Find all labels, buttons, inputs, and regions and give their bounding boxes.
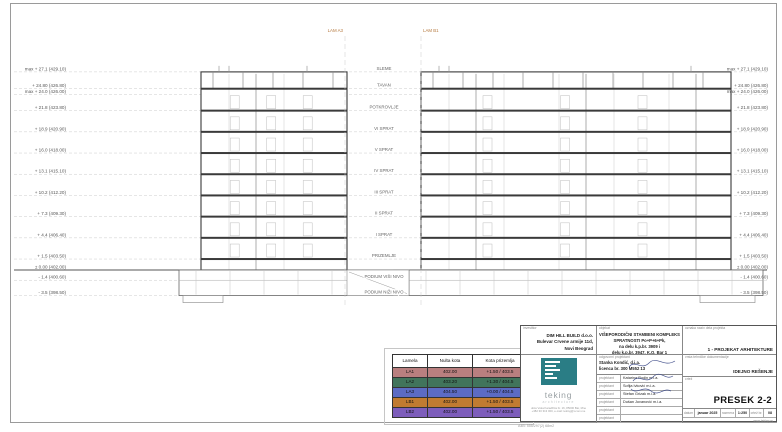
legend-row: LB1402.00+1.50 / 403.5 [393,398,528,408]
level-label-left: + 7.3 (409.30) [37,211,66,216]
project-line: VIŠEPORODIČNI STAMBENI KOMPLEKS [597,332,682,338]
floor-slab [421,216,731,218]
legend-cell-nulta: 402.00 [428,408,473,418]
designer-label: projektant [597,375,621,382]
legend-cell-lamela: LB1 [393,398,428,408]
building-block-left [201,66,347,270]
level-label-left: - 3.5 (398.50) [38,290,66,295]
level-label-left: + 13.1 (415.10) [35,169,67,174]
sheet-number-label: crtež br. [750,409,764,417]
designer-label: projektant [597,407,621,414]
floor-name-label: IV SPRAT [374,168,394,173]
level-label-left: ± 0.00 (402.00) [35,265,67,270]
investor-city: Novi Beograd [537,346,593,352]
floor-name-label: PODIUM NIŽI NIVO [364,290,404,295]
floor-name-label: VI SPRAT [374,126,394,131]
website: www.teking.rs [753,419,773,423]
level-label-right: - 3.5 (398.50) [740,290,768,295]
drawing-info-cell: vrsta tehničke dokumentacije IDEJNO REŠE… [683,355,776,423]
foundation-detail [700,296,755,303]
level-label-left: + 4.4 (406.40) [37,232,66,237]
designer-name [621,415,682,422]
drawing-title: PRESEK 2-2 [714,395,772,406]
doc-type-label: vrsta tehničke dokumentacije [685,356,729,359]
designer-name: Dušan Jovanović m.i.a. [621,399,682,406]
investor-label: investitor [523,327,537,330]
level-label-right: + 21.8 (423.80) [737,105,769,110]
floor-name-label: PRIZEMLJE [372,253,396,258]
legend-row: LA2403.20+1.30 / 404.5 [393,378,528,388]
level-label-left: + 10.2 (412.20) [35,190,67,195]
designer-label: projektant [597,399,621,406]
doc-type-value: IDEJNO REŠENJE [733,369,773,374]
floor-name-label: PODIUM VIŠI NIVO [364,274,404,279]
floor-slab [201,152,347,154]
building-block-right [421,66,731,270]
floor-slab [421,237,731,239]
designer-row: projektant Dušan Jovanović m.i.a. [597,399,682,407]
floor-slab [421,258,731,260]
legend-cell-nulta: 404.50 [428,388,473,398]
studio-contact: +382 30 313 000, e-mail: teking@t-com.me [521,410,596,414]
drawing-title-cell: crtež PRESEK 2-2 [683,377,776,409]
project-part-value: 1 - PROJEKAT ARHITEKTURE [708,347,773,352]
lamela-marker-label: LAM A3 [328,28,344,33]
legend-cell-lamela: LA2 [393,378,428,388]
level-label-left: max + 24.0 (426.00) [25,89,67,94]
floor-slab [201,258,347,260]
level-label-right: + 13.1 (415.10) [737,169,769,174]
brand-name: teking [521,391,596,400]
date-value: januar 2025 [695,409,721,417]
brand-subtitle: architecture [521,400,596,404]
date-scale-row: datum januar 2025 razmera 1:250 crtež br… [683,409,776,418]
level-label-right: ± 0.00 (402.00) [737,265,769,270]
legend-cell-nulta: 402.00 [428,368,473,378]
level-label-right: + 7.3 (409.30) [739,211,768,216]
signature [623,357,681,399]
paper-format-note: A4B: 555/297(2) 68m2 [518,424,554,428]
floor-slab [201,194,347,196]
designer-cell: odgovorni projektant Stanka Kondić, d.i.… [597,355,683,423]
level-label-left: + 18.9 (420.90) [35,126,67,131]
floor-slab [201,216,347,218]
title-block: investitor DIM HILL BUILD d.o.o. Bulevar… [520,325,777,422]
building-outline [421,72,731,270]
building-outline [201,72,347,270]
level-label-left: max + 27.1 (429.10) [25,66,67,71]
level-label-left: + 21.8 (423.80) [35,105,67,110]
drawing-sheet: LAM A3LAM B1max + 27.1 (429.10)max + 27.… [0,0,782,432]
level-label-right: + 16.0 (418.00) [737,148,769,153]
teking-logo-icon [541,358,577,385]
level-label-right: max + 24.0 (426.00) [727,89,769,94]
level-label-left: - 1.4 (400.60) [38,275,66,280]
designer-label: projektant [597,415,621,422]
floor-name-label: III SPRAT [374,189,394,194]
floor-slab [201,173,347,175]
level-label-right: max + 27.1 (429.10) [727,66,769,71]
level-label-right: - 1.4 (400.60) [740,275,768,280]
designer-name [621,407,682,414]
legend-header-row: Lamela Nulta kota Kota prizemlja [393,355,528,368]
legend-cell-lamela: LA1 [393,368,428,378]
date-label: datum [683,409,695,417]
investor-address: Bulevar Crvene armije 11d, [537,339,593,345]
sheet-number-value: 08 [764,409,776,417]
floor-name-label: I SPRAT [376,232,393,237]
project-part-label: oznaka naziv dela projekta [685,327,725,330]
legend-header-lamela: Lamela [393,355,428,368]
floor-slab [421,152,731,154]
designer-label: projektant [597,391,621,398]
project-label: objekat [599,327,610,330]
doc-type-cell: vrsta tehničke dokumentacije IDEJNO REŠE… [683,355,776,377]
website-row: www.teking.rs [683,418,776,423]
level-label-left: + 1.5 (403.50) [37,254,66,259]
floor-slab [421,194,731,196]
floor-name-label: POTKROVLJE [369,105,398,110]
designer-row: projektant [597,407,682,415]
floor-slab [421,131,731,133]
project-part-cell: oznaka naziv dela projekta 1 - PROJEKAT … [683,326,776,355]
floor-slab [421,88,731,90]
legend-cell-lamela: LB2 [393,408,428,418]
floor-name-label: SLEME [377,66,392,71]
floor-slab [421,173,731,175]
level-label-left: + 16.0 (418.00) [35,148,67,153]
drawing-label: crtež [685,378,692,381]
floor-slab [421,110,731,112]
floor-slab [201,110,347,112]
designer-label: projektant [597,383,621,390]
legend-panel: Lamela Nulta kota Kota prizemlja LA1402.… [384,348,534,425]
level-label-right: + 4.4 (406.40) [739,232,768,237]
level-label-right: + 18.9 (420.90) [737,126,769,131]
legend-header-nulta-kota: Nulta kota [428,355,473,368]
lamela-marker-label: LAM B1 [423,28,439,33]
legend-cell-nulta: 402.00 [428,398,473,408]
floor-name-label: V SPRAT [375,147,394,152]
scale-label: razmera [721,409,736,417]
foundation-detail [183,296,223,303]
designer-row: projektant [597,415,682,423]
level-label-right: + 10.2 (412.20) [737,190,769,195]
project-cell: objekat VIŠEPORODIČNI STAMBENI KOMPLEKS … [597,326,683,355]
floor-slab [201,131,347,133]
level-label-right: + 1.5 (403.50) [739,254,768,259]
logo-cell: teking architecture ulica Vuka Karadžića… [521,355,597,423]
legend-cell-lamela: LA3 [393,388,428,398]
podium-outline [409,270,763,296]
level-label-left: + 24.80 (426.80) [32,83,66,88]
investor-cell: investitor DIM HILL BUILD d.o.o. Bulevar… [521,326,597,355]
lamela-table: Lamela Nulta kota Kota prizemlja LA1402.… [392,354,528,418]
legend-row: LA3404.50+0.00 / 404.5 [393,388,528,398]
scale-value: 1:250 [736,409,750,417]
floor-name-label: TAVAN [377,83,391,88]
floor-slab [201,237,347,239]
legend-row: LB2402.00+1.50 / 403.5 [393,408,528,418]
level-label-right: + 24.80 (426.80) [734,83,768,88]
floor-name-label: II SPRAT [375,211,393,216]
legend-cell-nulta: 403.20 [428,378,473,388]
floor-slab [201,88,347,90]
legend-row: LA1402.00+1.50 / 403.5 [393,368,528,378]
